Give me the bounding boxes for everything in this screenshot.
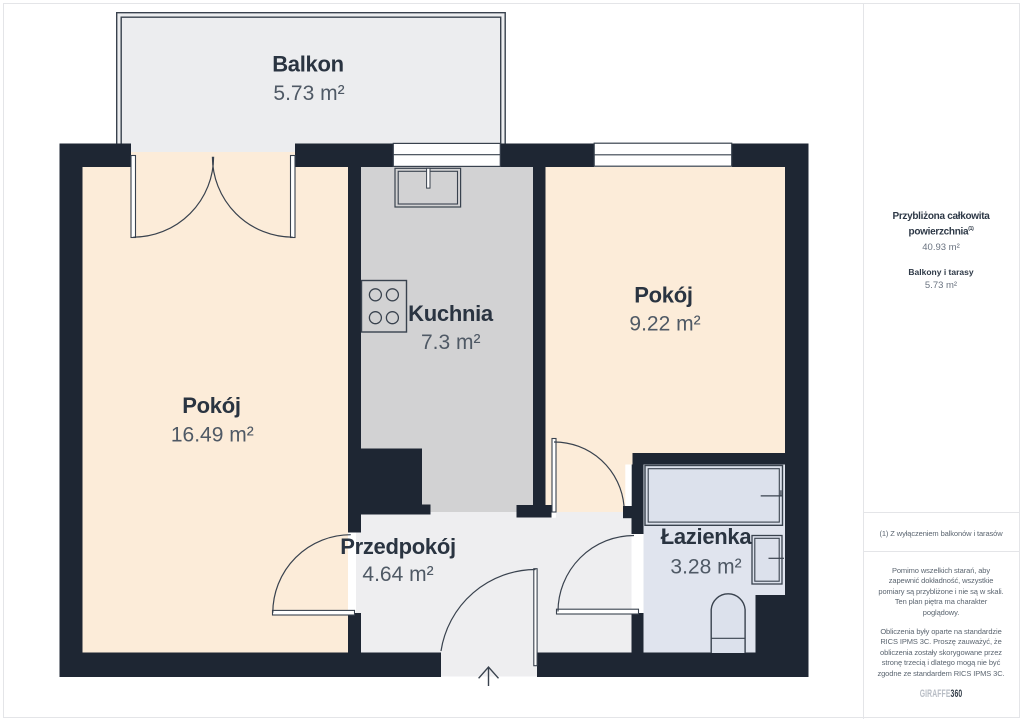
svg-text:Kuchnia: Kuchnia xyxy=(408,301,494,326)
svg-text:3.28 m²: 3.28 m² xyxy=(670,555,741,578)
svg-text:Pokój: Pokój xyxy=(182,393,240,418)
svg-text:5.73 m²: 5.73 m² xyxy=(273,82,344,105)
svg-text:16.49 m²: 16.49 m² xyxy=(171,423,254,446)
svg-text:Pokój: Pokój xyxy=(634,282,692,307)
svg-text:4.64 m²: 4.64 m² xyxy=(362,563,433,586)
svg-text:9.22 m²: 9.22 m² xyxy=(629,312,700,335)
svg-text:Balkon: Balkon xyxy=(272,52,344,77)
svg-text:7.3 m²: 7.3 m² xyxy=(421,331,481,354)
svg-text:Przedpokój: Przedpokój xyxy=(340,534,456,559)
svg-text:Łazienka: Łazienka xyxy=(661,524,753,549)
